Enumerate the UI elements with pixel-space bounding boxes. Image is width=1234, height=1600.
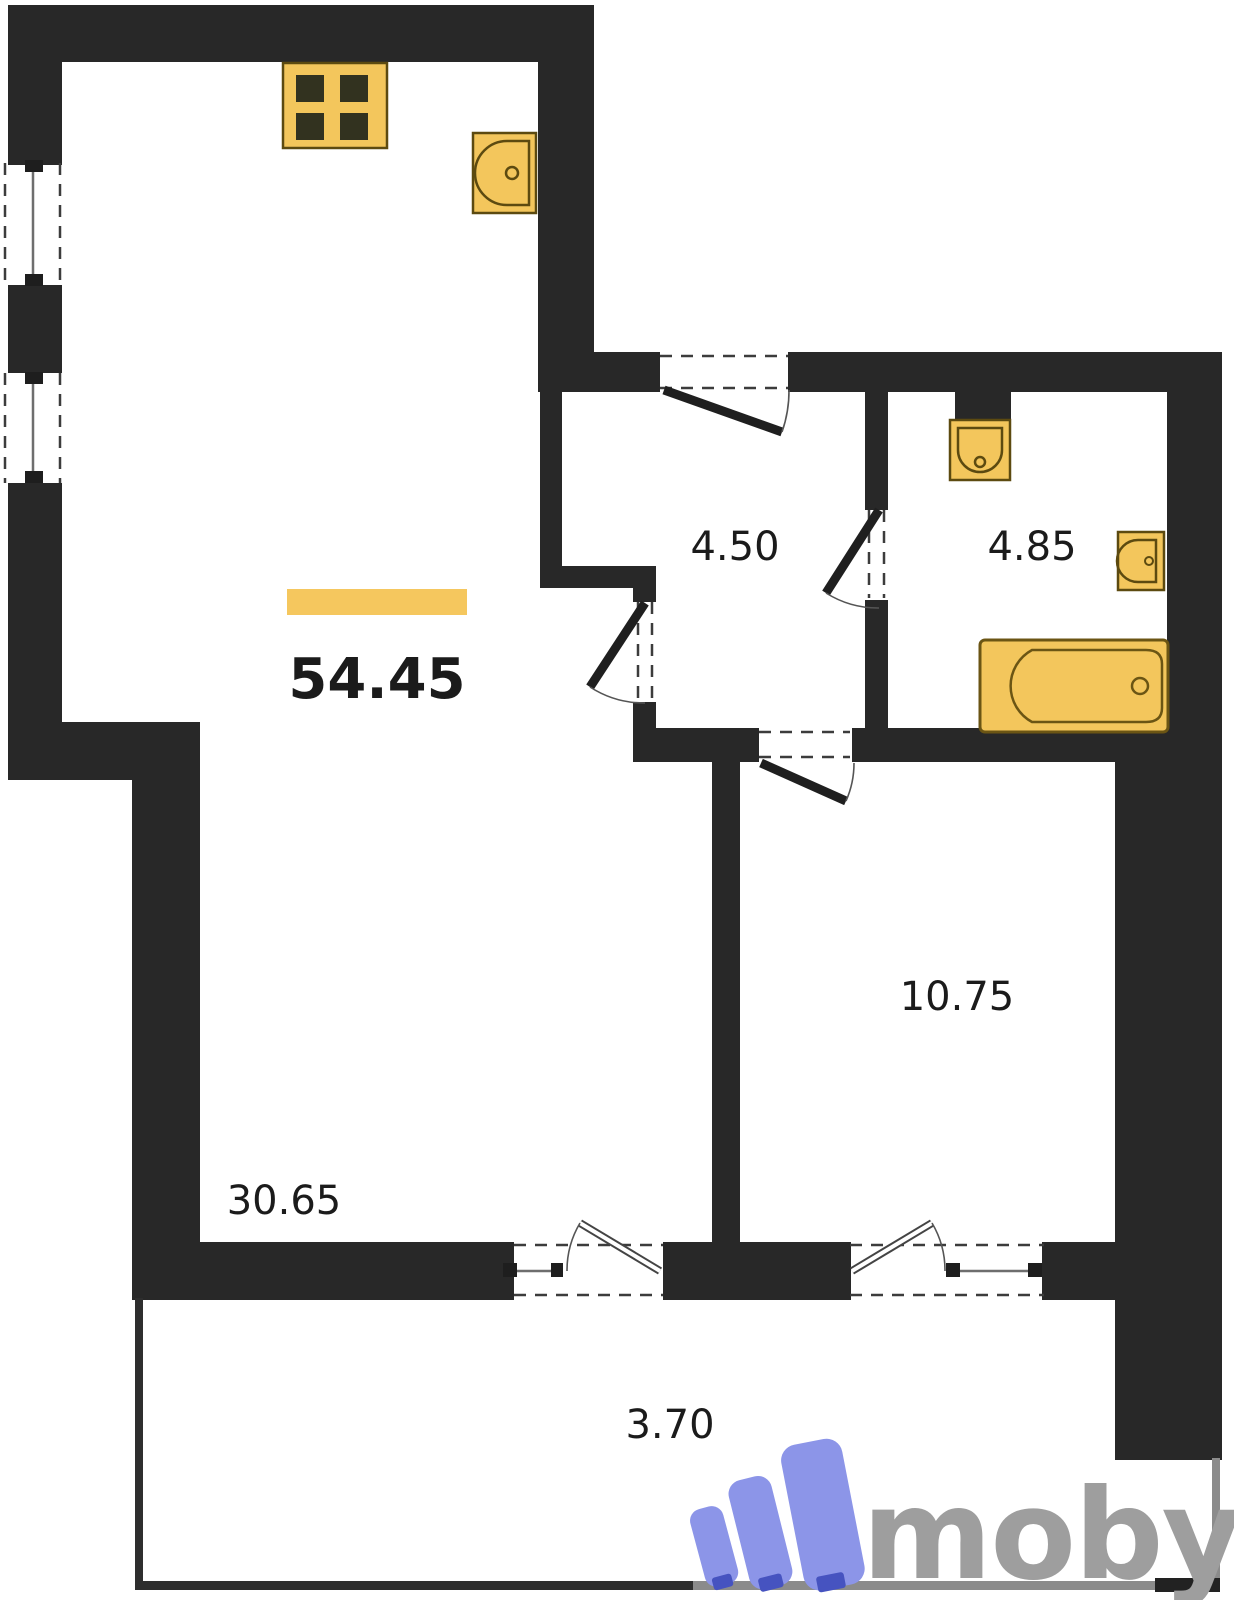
balcony-area-label: 3.70 [625,1402,714,1448]
watermark-logo: moby [687,1436,1234,1600]
living-area-label: 30.65 [227,1178,342,1224]
wall-segment [8,285,62,373]
toilet-icon [950,392,1011,480]
wall-segment [633,588,656,602]
window-left-upper [5,160,60,286]
wall-segment [8,722,200,780]
bathtub-icon [980,640,1168,732]
wall-segment [663,1242,851,1300]
wall-segment [132,1242,514,1300]
wall-segment [1042,1242,1118,1300]
labels: 54.45 4.50 4.85 10.75 30.65 3.70 [227,524,1077,1448]
stove-icon [283,63,387,148]
wall-segment [8,5,62,165]
wall-segment [712,762,740,1244]
window-left-lower [5,372,60,483]
total-area-label: 54.45 [288,647,465,712]
wall-segment [1167,392,1222,730]
wall-segment [633,728,759,762]
wall-segment [538,62,594,354]
wall-segment [540,392,562,568]
fixtures [283,63,1168,732]
balcony-door-bedroom [852,1223,945,1271]
floor-plan-page: 54.45 4.50 4.85 10.75 30.65 3.70 moby [0,0,1234,1600]
wall-segment [8,5,594,62]
bedroom-area-label: 10.75 [900,974,1015,1020]
wall-segment [788,352,1222,392]
balcony-door-living [567,1223,660,1271]
doors [567,356,945,1271]
wall-segment [132,780,200,1244]
entrance-door [660,356,789,432]
wall-segment [633,702,656,730]
balcony-border-left [135,1298,143,1590]
washbasin-icon [1117,532,1164,590]
kitchen-door [590,602,652,703]
wall-segment [540,566,656,588]
moby-logo-icon [687,1436,867,1595]
wall-segment [1115,762,1222,1460]
bathroom-door [826,510,884,608]
wall-segment [538,352,660,392]
wall-segment [865,600,888,730]
hallway-area-label: 4.50 [690,524,779,570]
floor-plan-drawing: 54.45 4.50 4.85 10.75 30.65 3.70 moby [0,0,1234,1600]
window-living-balcony [503,1245,663,1295]
total-area-highlight-bar [287,589,467,615]
wall-segment [8,483,62,724]
bathroom-area-label: 4.85 [987,524,1076,570]
wall-segment [865,392,888,510]
balcony-border-bottom [135,1581,693,1590]
bedroom-door [759,732,854,801]
kitchen-sink-icon [473,133,536,213]
moby-logo-text: moby [862,1463,1234,1600]
